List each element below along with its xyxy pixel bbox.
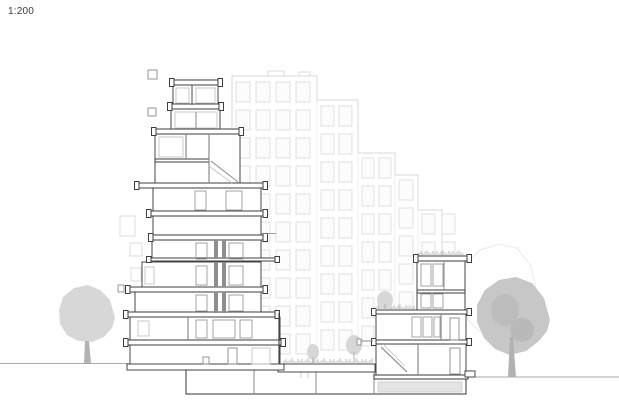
facade-window [131,268,141,281]
facade-window-grid [321,134,334,154]
main-slab-l4-thin-cap [275,257,280,263]
facade-window-grid [379,214,391,234]
main-slab-l3-cap [263,286,268,294]
facade-window-grid [379,270,391,290]
main-slab-l8 [153,129,242,134]
railing-post [148,70,157,79]
facade-window-grid [321,162,334,182]
facade-window-grid [379,186,391,206]
annex-terrace-slab [373,310,470,314]
facade-window-grid [399,264,413,284]
facade-window-grid [256,82,270,102]
facade-parapet [299,72,310,76]
core-wall [214,240,218,259]
facade-window-grid [442,214,455,234]
main-slab-l5-cap [263,234,268,242]
facade-window-grid [296,278,310,298]
main-slab-l4-thin [148,258,278,261]
left-tree-canopy [59,285,115,342]
section-drawing-svg [0,0,619,400]
facade-window-grid [296,250,310,270]
main-slab-l9 [169,104,222,109]
facade-window-grid [296,194,310,214]
annex-roof-slab-cap [467,255,472,263]
facade-window-grid [321,274,334,294]
railing-post [148,108,156,116]
main-slab-terrace [155,159,209,162]
facade-window-grid [296,222,310,242]
facade-window-grid [296,138,310,158]
main-roof-slab-cap [170,79,175,87]
main-slab-l1 [125,340,284,345]
annex-mid-slab [417,290,465,293]
annex-roof-slab [415,256,470,261]
basement-floor-slab [378,382,462,392]
core-wall [214,262,218,287]
facade-window-grid [362,270,374,290]
main-slab-l6-cap [147,210,152,218]
main-slab-l1-cap [281,339,286,347]
facade-window-grid [362,214,374,234]
main-slab-l3-cap [126,286,131,294]
core-wall [214,292,218,313]
facade-window-grid [296,306,310,326]
annex-slab-l1-cap [372,339,377,346]
courtyard-slab [278,364,375,372]
facade-window-grid [379,158,391,178]
main-slab-l4-thin-cap [147,257,152,263]
main-slab-l9-cap [219,103,224,111]
facade-window-grid [339,218,352,238]
main-slab-l9-cap [168,103,173,111]
facade-window-grid [321,302,334,322]
annex-bottom-slab [374,375,468,379]
facade-window-grid [296,110,310,130]
facade-window-grid [321,330,334,350]
annex-roof-slab-cap [414,255,419,263]
facade-window-grid [276,166,290,186]
facade-window-grid [379,242,391,262]
facade-window-grid [339,274,352,294]
annex-floor-top [417,261,465,310]
facade-window-grid [276,110,290,130]
facade-window [120,216,135,236]
main-slab-l7-cap [263,182,268,190]
main-slab-l3 [127,287,266,292]
facade-window-grid [399,236,413,256]
annex-terrace-slab-cap [372,309,377,316]
facade-window-grid [276,278,290,298]
facade-window-grid [321,106,334,126]
facade-window-grid [321,218,334,238]
facade-window-grid [236,82,250,102]
facade-window-grid [362,186,374,206]
facade-window-grid [339,134,352,154]
facade-window-grid [256,138,270,158]
main-foundation-slab [127,364,284,370]
drawing-canvas: 1:200 [0,0,619,400]
main-slab-l2-cap [124,311,129,319]
main-slab-l5 [150,235,266,240]
facade-window-grid [422,214,435,234]
facade-window-grid [399,180,413,200]
annex-terrace-slab-cap [467,309,472,316]
facade-window-grid [339,302,352,322]
facade-window-grid [296,82,310,102]
scale-label: 1:200 [8,6,34,17]
facade-window-grid [399,208,413,228]
facade-window-grid [339,246,352,266]
facade-window-grid [339,190,352,210]
main-slab-l8-cap [152,128,157,136]
facade-parapet [268,71,284,76]
facade-window-grid [276,194,290,214]
core-wall [222,240,226,259]
left-tree-trunk [84,341,91,363]
main-slab-l1-cap [124,339,129,347]
facade-window [130,243,142,256]
main-floor-6 [153,188,261,212]
facade-window-grid [339,162,352,182]
facade-window-grid [276,82,290,102]
facade-window-grid [256,110,270,130]
main-slab-l7 [136,183,266,188]
facade-window-grid [321,190,334,210]
facade-window-grid [296,166,310,186]
annex-entrance-pad [465,371,475,377]
right-tree-foliage-patch [510,318,534,342]
main-slab-l6 [148,211,266,216]
facade-window-grid [276,138,290,158]
main-floor-1 [130,317,280,341]
main-slab-l5-cap [149,234,154,242]
main-slab-l7-cap [135,182,140,190]
core-wall [222,262,226,287]
core-wall [222,292,226,313]
annex-floor-ground [376,344,466,375]
main-floor-5 [153,216,261,236]
main-roof-slab [171,80,221,85]
facade-window-grid [321,246,334,266]
annex-slab-l1 [373,340,470,344]
main-slab-l2 [125,312,278,317]
facade-window-grid [362,242,374,262]
main-roof-slab-cap [218,79,223,87]
main-slab-l6-cap [263,210,268,218]
main-slab-l8-cap [239,128,244,136]
facade-window-grid [276,222,290,242]
annex-canopy-bracket [357,339,361,345]
facade-window-grid [339,106,352,126]
annex-slab-l1-cap [467,339,472,346]
facade-window-grid [362,158,374,178]
balcony-bracket [118,285,124,292]
